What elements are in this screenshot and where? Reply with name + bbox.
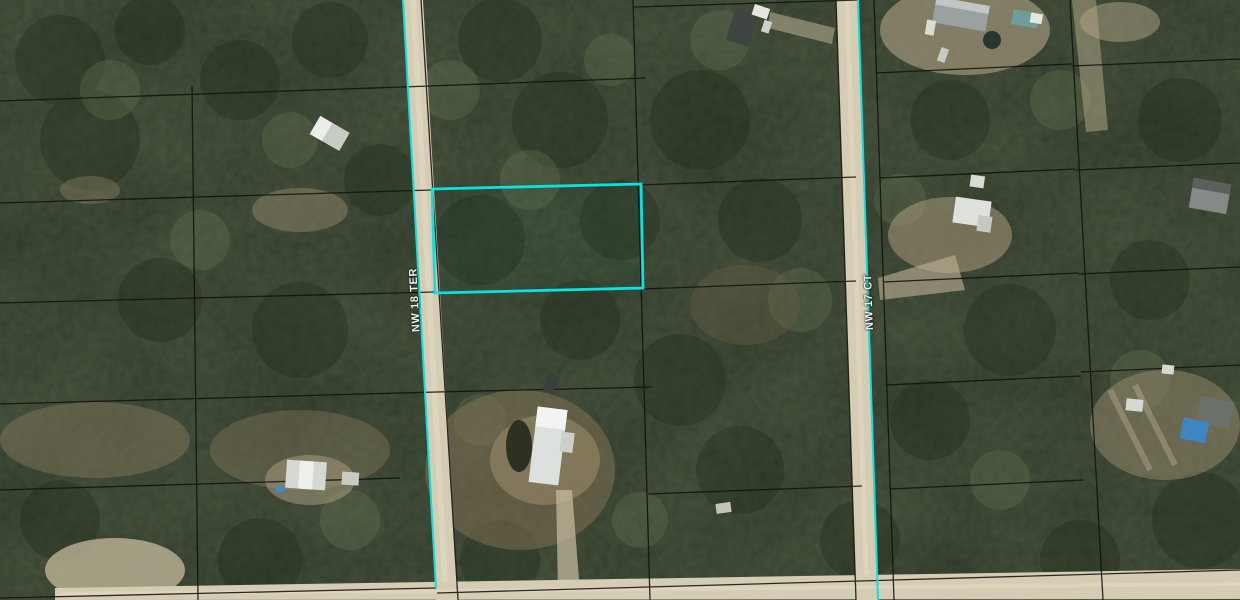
map-canvas[interactable]: NW 18 TER NW 17 CT bbox=[0, 0, 1240, 600]
aerial-imagery bbox=[0, 0, 1240, 600]
highlighted-parcel-outline[interactable] bbox=[432, 184, 643, 293]
